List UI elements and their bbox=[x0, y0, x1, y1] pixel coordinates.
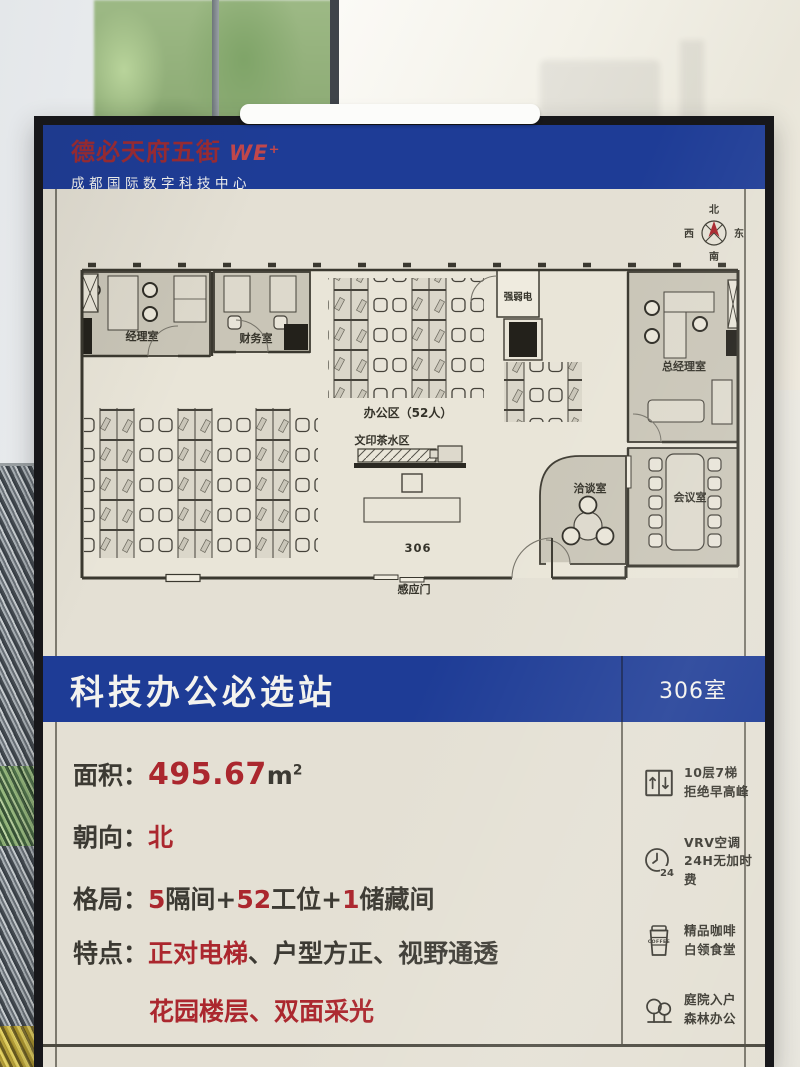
headline-banner: 科技办公必选站 306室 bbox=[43, 656, 765, 722]
separator: 、 bbox=[373, 939, 398, 968]
we-logo: WE⁺ bbox=[229, 141, 281, 165]
spec-features-line2: 花园楼层、双面采光 bbox=[73, 992, 621, 1028]
layout-storage-text: 储藏间 bbox=[360, 885, 435, 914]
utility-room-label: 强弱电 bbox=[504, 291, 533, 303]
room-manager-office: 经理室 bbox=[82, 272, 210, 356]
meeting-room-label: 会议室 bbox=[674, 490, 707, 504]
compass-west-label: 西 bbox=[684, 228, 694, 240]
amenity-line1: 精品咖啡 bbox=[684, 922, 736, 941]
plan-room-number: 306 bbox=[404, 541, 431, 555]
separator: 、 bbox=[248, 939, 273, 968]
board-hanger-clip bbox=[240, 104, 540, 124]
room-finance-office: 财务室 bbox=[214, 272, 310, 352]
details-section: 面积：495.67m2 朝向：北 格局：5隔间+52工位+1储藏间 特点：正对电… bbox=[43, 722, 765, 1044]
amenity-hvac-24h: 24 VRV空调 24H无加时费 bbox=[643, 834, 765, 890]
sensor-door-label: 感应门 bbox=[398, 582, 431, 596]
brand-header: 德必天府五街 WE⁺ 成都国际数字科技中心 bbox=[43, 125, 765, 189]
clock-24-text: 24 bbox=[660, 868, 674, 878]
sign-board: 德必天府五街 WE⁺ 成都国际数字科技中心 北 东 南 西 bbox=[34, 116, 774, 1067]
feature-facing-elevator: 正对电梯 bbox=[148, 939, 248, 968]
compass-east-label: 东 bbox=[734, 227, 744, 240]
separator: 、 bbox=[249, 997, 274, 1026]
amenity-line1: 10层7梯 bbox=[684, 764, 749, 783]
finance-office-label: 财务室 bbox=[239, 331, 273, 345]
feature-square-layout: 户型方正 bbox=[273, 939, 373, 968]
spec-area: 面积：495.67m2 bbox=[73, 756, 621, 792]
feature-garden-floor: 花园楼层 bbox=[149, 997, 249, 1026]
coffee-icon: COFFEE bbox=[643, 924, 675, 958]
facing-value: 北 bbox=[148, 823, 173, 852]
amenity-line2: 拒绝早高峰 bbox=[684, 783, 749, 802]
feature-open-view: 视野通透 bbox=[398, 939, 498, 968]
workstation-block-right bbox=[504, 362, 582, 422]
manager-office-label: 经理室 bbox=[126, 329, 159, 343]
amenity-text: VRV空调 24H无加时费 bbox=[684, 834, 765, 890]
layout-label: 格局： bbox=[73, 885, 148, 914]
amenity-text: 精品咖啡 白领食堂 bbox=[684, 922, 736, 960]
amenity-text: 10层7梯 拒绝早高峰 bbox=[684, 764, 749, 802]
layout-seats-count: 52 bbox=[236, 885, 271, 914]
negotiation-room-label: 洽谈室 bbox=[574, 481, 607, 495]
spec-list: 面积：495.67m2 朝向：北 格局：5隔间+52工位+1储藏间 特点：正对电… bbox=[43, 722, 621, 1044]
open-office-label: 办公区（52人） bbox=[364, 405, 453, 420]
feature-double-light: 双面采光 bbox=[274, 997, 374, 1026]
spec-features-line1: 特点：正对电梯、户型方正、视野通透 bbox=[73, 934, 621, 970]
amenity-text: 庭院入户 森林办公 bbox=[684, 991, 736, 1029]
amenity-elevator: 10层7梯 拒绝早高峰 bbox=[643, 764, 765, 802]
sign-board-face: 德必天府五街 WE⁺ 成都国际数字科技中心 北 东 南 西 bbox=[43, 125, 765, 1067]
features-label: 特点： bbox=[73, 939, 148, 968]
clock-24h-icon: 24 bbox=[643, 846, 675, 878]
facing-label: 朝向： bbox=[73, 823, 148, 852]
spec-facing: 朝向：北 bbox=[73, 818, 621, 854]
area-unit: m bbox=[267, 761, 293, 790]
workstation-block-upper bbox=[328, 278, 484, 398]
workstation-block-lower bbox=[84, 408, 318, 558]
floor-plan: 经理室 财务室 bbox=[78, 260, 754, 600]
compass-icon: 北 东 南 西 bbox=[683, 201, 745, 263]
details-divider bbox=[621, 722, 623, 1044]
banner-divider bbox=[621, 656, 623, 722]
elevator-icon bbox=[643, 767, 675, 799]
print-tea-label: 文印茶水区 bbox=[355, 433, 410, 447]
area-value: 495.67 bbox=[148, 757, 267, 792]
amenities-panel: 10层7梯 拒绝早高峰 24 VRV空调 24H无 bbox=[621, 722, 765, 1044]
coffee-text: COFFEE bbox=[648, 939, 670, 945]
amenity-line2: 森林办公 bbox=[684, 1010, 736, 1029]
headline-title: 科技办公必选站 bbox=[43, 665, 621, 714]
compass-north-label: 北 bbox=[709, 203, 719, 216]
room-number-badge: 306室 bbox=[621, 673, 765, 705]
amenity-line2: 24H无加时费 bbox=[684, 852, 765, 890]
area-unit-sup: 2 bbox=[293, 763, 303, 779]
amenity-line2: 白领食堂 bbox=[684, 941, 736, 960]
amenity-line1: VRV空调 bbox=[684, 834, 765, 853]
brand-name: 德必天府五街 bbox=[71, 132, 221, 167]
photo-of-office-listing-sign: 德必天府五街 WE⁺ 成都国际数字科技中心 北 东 南 西 bbox=[0, 0, 800, 1067]
room-meeting: 会议室 bbox=[624, 448, 738, 566]
layout-storage-count: 1 bbox=[342, 885, 359, 914]
amenity-line1: 庭院入户 bbox=[684, 991, 736, 1010]
floor-plan-section: 北 东 南 西 bbox=[43, 189, 765, 656]
layout-seats-text: 工位+ bbox=[271, 885, 342, 914]
layout-rooms-count: 5 bbox=[148, 885, 165, 914]
trees-icon bbox=[643, 994, 675, 1026]
general-manager-office-label: 总经理室 bbox=[662, 359, 706, 373]
amenity-garden: 庭院入户 森林办公 bbox=[643, 991, 765, 1029]
spec-layout: 格局：5隔间+52工位+1储藏间 bbox=[73, 880, 621, 916]
area-label: 面积： bbox=[73, 761, 148, 790]
layout-rooms-text: 隔间+ bbox=[165, 885, 236, 914]
amenity-coffee: COFFEE 精品咖啡 白领食堂 bbox=[643, 922, 765, 960]
bottom-rule bbox=[43, 1044, 765, 1047]
